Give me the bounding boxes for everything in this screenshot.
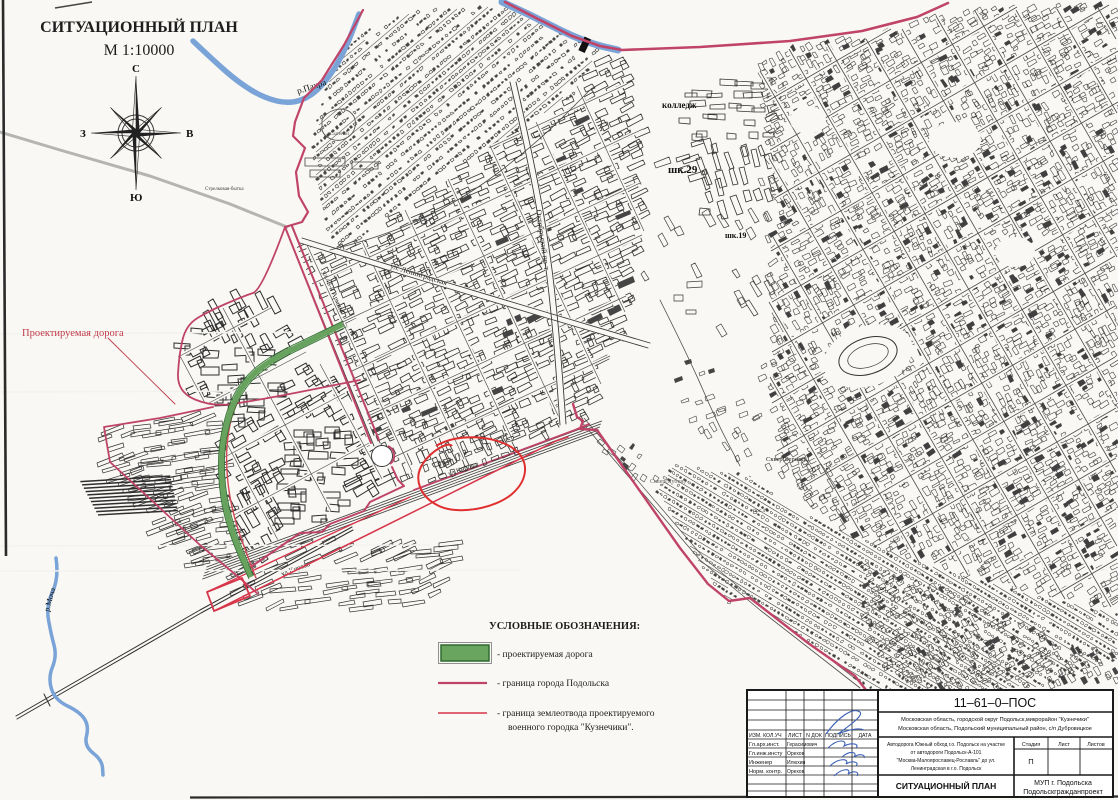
svg-text:СИТУАЦИОННЫЙ ПЛАН: СИТУАЦИОННЫЙ ПЛАН bbox=[40, 17, 238, 36]
svg-text:Орехов: Орехов bbox=[787, 769, 805, 775]
svg-text:N ДОК: N ДОК bbox=[806, 733, 822, 739]
svg-text:МУП г. Подольска: МУП г. Подольска bbox=[1034, 780, 1092, 787]
svg-text:от автодороги Подольск-А-101: от автодороги Подольск-А-101 bbox=[911, 750, 982, 756]
svg-text:Проектируемая дорога: Проектируемая дорога bbox=[22, 328, 124, 339]
svg-text:Листов: Листов bbox=[1087, 742, 1105, 748]
svg-text:В: В bbox=[186, 128, 194, 140]
svg-text:З: З bbox=[80, 128, 86, 140]
svg-text:Подольскгражданпроект: Подольскгражданпроект bbox=[1023, 789, 1103, 796]
svg-text:Московская область, городской: Московская область, городской округ Подо… bbox=[901, 716, 1089, 723]
svg-text:Норм. контр.: Норм. контр. bbox=[749, 769, 783, 775]
svg-text:М 1:10000: М 1:10000 bbox=[104, 42, 175, 59]
svg-text:ИЗМ. КОЛ.УЧ: ИЗМ. КОЛ.УЧ bbox=[749, 733, 782, 739]
svg-text:Сытенки: Сытенки bbox=[330, 132, 349, 137]
svg-text:Орехов: Орехов bbox=[787, 751, 805, 757]
svg-text:УСЛОВНЫЕ ОБОЗНАЧЕНИЯ:: УСЛОВНЫЕ ОБОЗНАЧЕНИЯ: bbox=[489, 621, 640, 632]
svg-text:колледж: колледж bbox=[662, 100, 697, 110]
svg-text:Стадия: Стадия bbox=[1022, 742, 1040, 748]
svg-text:ЛИСТ: ЛИСТ bbox=[788, 733, 803, 739]
svg-text:Сквер(Дубки): Сквер(Дубки) bbox=[650, 478, 686, 485]
svg-text:военного городка "Кузнечики".: военного городка "Кузнечики". bbox=[508, 723, 634, 733]
svg-text:Гл.арх.инст.: Гл.арх.инст. bbox=[749, 742, 780, 748]
svg-text:П: П bbox=[1028, 757, 1033, 766]
svg-text:шк.19: шк.19 bbox=[725, 231, 746, 240]
svg-text:Инженер: Инженер bbox=[749, 760, 772, 766]
svg-text:- граница землеотвода прое: - граница землеотвода проектируемого bbox=[497, 709, 655, 719]
svg-text:Илюхин: Илюхин bbox=[787, 760, 805, 766]
svg-text:Гл.инж.инсту: Гл.инж.инсту bbox=[749, 751, 783, 757]
svg-text:СИТУАЦИОННЫЙ ПЛАН: СИТУАЦИОННЫЙ ПЛАН bbox=[896, 780, 997, 791]
svg-text:Ю: Ю bbox=[130, 192, 142, 204]
svg-text:- проектируемая дорога: - проектируемая дорога bbox=[497, 650, 594, 660]
svg-text:пос.17: пос.17 bbox=[753, 508, 768, 514]
svg-text:Автодорога Южный обход г.о. По: Автодорога Южный обход г.о. Подольск на … bbox=[887, 741, 1005, 748]
svg-text:Стрелковая-бытка: Стрелковая-бытка bbox=[205, 187, 244, 192]
svg-text:"Москва-Малоярославец-Рославль: "Москва-Малоярославец-Рославль" до ул. bbox=[897, 758, 996, 764]
svg-text:Московская область, Подольски: Московская область, Подольский муниципал… bbox=[898, 725, 1092, 732]
svg-text:Ленинградская в г.о. Подольск: Ленинградская в г.о. Подольск bbox=[911, 766, 982, 772]
svg-text:11–61–0–ПОС: 11–61–0–ПОС bbox=[954, 696, 1036, 710]
svg-text:шк.29: шк.29 bbox=[668, 164, 698, 176]
svg-text:ДАТА: ДАТА bbox=[858, 733, 872, 739]
svg-text:- граница города Подольска: - граница города Подольска bbox=[497, 679, 610, 689]
svg-text:Сквер(Березки): Сквер(Березки) bbox=[766, 456, 809, 463]
svg-text:Лист: Лист bbox=[1058, 742, 1070, 748]
svg-text:С: С bbox=[132, 63, 140, 75]
svg-text:Герасимович: Герасимович bbox=[787, 742, 818, 748]
